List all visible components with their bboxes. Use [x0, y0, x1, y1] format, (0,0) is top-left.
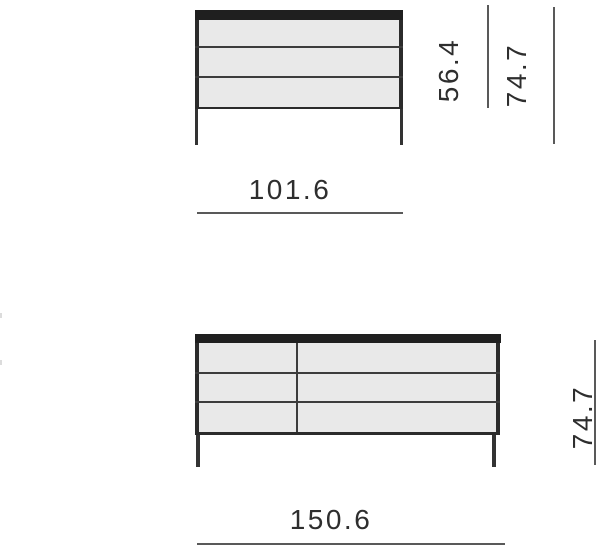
sideboard-large-body	[195, 343, 500, 432]
dimension-line-width-large	[197, 543, 505, 545]
sideboard-large-center-divider	[296, 343, 298, 432]
sideboard-small-bottom-rail	[195, 107, 403, 109]
dimension-line-total-height-small	[553, 7, 555, 144]
sideboard-small-body	[195, 20, 403, 107]
sideboard-small-drawer-divider-1	[195, 46, 403, 48]
technical-drawing-canvas: 56.4 74.7 101.6 74.7 150.6	[0, 0, 609, 554]
edge-mark	[0, 360, 2, 365]
dimension-label-width-small: 101.6	[249, 176, 332, 204]
dimension-label-body-height-small: 56.4	[435, 38, 463, 103]
sideboard-large-drawer-divider-2	[195, 401, 500, 403]
edge-mark	[0, 313, 2, 318]
dimension-label-total-height-large: 74.7	[569, 385, 597, 450]
sideboard-large-left-leg	[196, 435, 200, 467]
sideboard-small-left-leg	[195, 109, 198, 145]
sideboard-large-drawer-divider-1	[195, 372, 500, 374]
sideboard-small-drawer-divider-2	[195, 76, 403, 78]
sideboard-small-right-leg	[400, 109, 403, 145]
dimension-label-total-height-small: 74.7	[503, 43, 531, 108]
dimension-label-width-large: 150.6	[290, 506, 373, 534]
sideboard-large-bottom-rail	[195, 432, 500, 435]
dimension-line-width-small	[197, 212, 403, 214]
dimension-line-body-height-small	[487, 5, 489, 108]
sideboard-large-right-leg	[492, 435, 496, 467]
sideboard-small-top-panel	[195, 10, 403, 20]
sideboard-large-top-panel	[195, 334, 501, 343]
